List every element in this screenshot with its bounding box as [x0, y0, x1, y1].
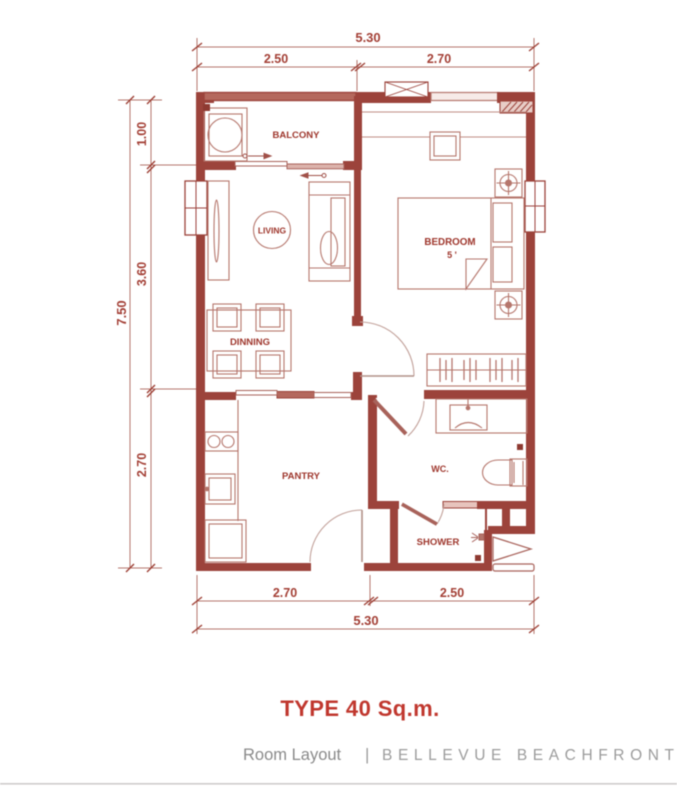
- svg-text:2.70: 2.70: [427, 52, 451, 66]
- svg-text:3.60: 3.60: [135, 262, 149, 286]
- svg-text:2.70: 2.70: [135, 453, 149, 477]
- svg-text:DINNING: DINNING: [230, 337, 270, 348]
- svg-text:SHOWER: SHOWER: [417, 537, 460, 548]
- svg-text:WC.: WC.: [431, 464, 449, 474]
- svg-text:BALCONY: BALCONY: [273, 130, 321, 141]
- svg-text:Room Layout: Room Layout: [243, 746, 342, 764]
- svg-text:TYPE 40 Sq.m.: TYPE 40 Sq.m.: [280, 696, 439, 721]
- svg-text:5.30: 5.30: [353, 613, 378, 628]
- svg-text:5.30: 5.30: [355, 30, 380, 45]
- svg-text:2.70: 2.70: [273, 586, 297, 600]
- svg-text:|: |: [365, 746, 369, 764]
- svg-text:2.50: 2.50: [264, 52, 288, 66]
- svg-text:2.50: 2.50: [440, 586, 464, 600]
- svg-text:BELLEVUE BEACHFRONT: BELLEVUE BEACHFRONT: [382, 747, 677, 764]
- svg-text:7.50: 7.50: [114, 300, 129, 325]
- svg-text:5 ': 5 ': [447, 250, 457, 260]
- svg-text:BEDROOM: BEDROOM: [424, 237, 475, 248]
- svg-text:LIVING: LIVING: [258, 226, 287, 236]
- svg-text:1.00: 1.00: [135, 122, 149, 146]
- svg-text:PANTRY: PANTRY: [282, 471, 321, 482]
